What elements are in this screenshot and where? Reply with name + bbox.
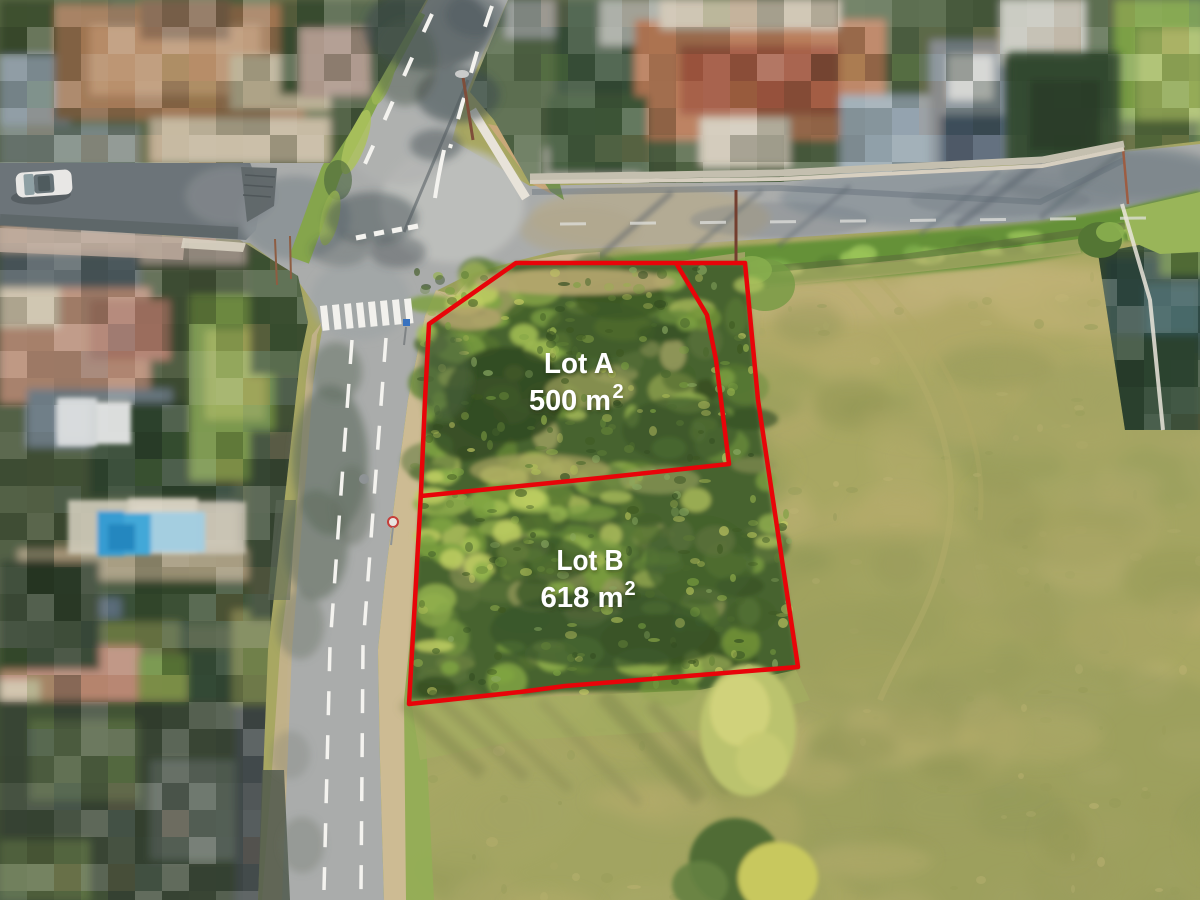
svg-text:Lot B: Lot B: [557, 545, 624, 577]
svg-text:618 m: 618 m: [541, 582, 624, 614]
svg-text:500 m: 500 m: [529, 385, 611, 417]
svg-text:Lot A: Lot A: [544, 348, 614, 380]
svg-text:2: 2: [624, 578, 635, 600]
svg-text:2: 2: [612, 381, 623, 403]
